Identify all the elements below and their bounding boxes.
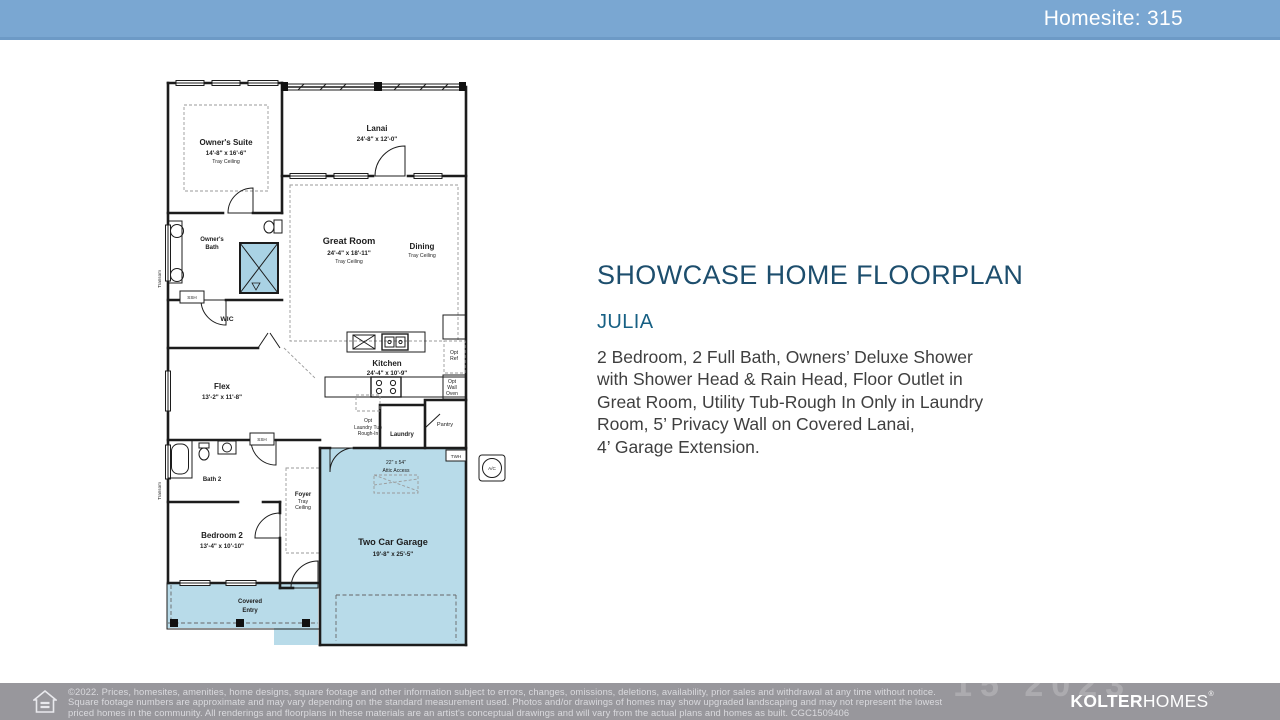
label-dining: Dining — [410, 242, 435, 251]
floorplan-image: Owner's Suite 14'-8" x 16'-6" Tray Ceili… — [150, 77, 510, 653]
label-owners-bath-2: Bath — [205, 245, 219, 251]
label-garage-dim: 19'-8" x 25'-5" — [373, 551, 414, 558]
label-kitchen-dim: 24'-4" x 10'-9" — [367, 370, 408, 377]
page-title: SHOWCASE HOME FLOORPLAN — [597, 260, 1023, 291]
label-kitchen: Kitchen — [372, 359, 401, 368]
blue-fill-areas — [167, 243, 466, 645]
label-bedroom-2-dim: 13'-4" x 10'-10" — [200, 543, 244, 550]
label-great-room-dim: 24'-4" x 18'-11" — [327, 250, 371, 257]
label-flex: Flex — [214, 382, 231, 391]
label-foyer-tray-2: Ceiling — [295, 505, 311, 511]
description-line: Room, 5’ Privacy Wall on Covered Lanai, — [597, 413, 983, 435]
label-owners-suite-tray: Tray Ceiling — [212, 159, 240, 165]
entry-walkway — [274, 628, 318, 645]
homesite-label: Homesite: 315 — [1044, 0, 1183, 37]
label-attic-1: 22" x 54" — [386, 460, 406, 466]
label-garage: Two Car Garage — [358, 537, 428, 547]
legal-line-3: priced homes in the community. All rende… — [68, 708, 942, 718]
label-foyer: Foyer — [295, 492, 312, 498]
label-lanai: Lanai — [367, 124, 388, 133]
label-great-room: Great Room — [323, 236, 376, 246]
label-covered-1: Covered — [238, 599, 262, 605]
label-bedroom-2: Bedroom 2 — [201, 531, 243, 540]
legal-text: ©2022. Prices, homesites, amenities, hom… — [68, 687, 942, 718]
label-bath-2: Bath 2 — [203, 477, 222, 483]
description-line: Great Room, Utility Tub-Rough In Only in… — [597, 391, 983, 413]
label-flex-dim: 13'-2" x 11'-8" — [202, 394, 242, 401]
registered-mark: ® — [1209, 691, 1214, 698]
label-lanai-dim: 24'-8" x 12'-0" — [357, 136, 398, 143]
page: Homesite: 315 — [0, 0, 1280, 720]
lanai-screen — [281, 82, 466, 91]
brand-bold: KOLTER — [1070, 691, 1142, 711]
label-transom-1: Transom — [157, 270, 162, 288]
label-attic-2: Attic Access — [383, 468, 410, 474]
brand-light: HOMES — [1143, 691, 1209, 711]
description-line: 2 Bedroom, 2 Full Bath, Owners’ Deluxe S… — [597, 346, 983, 368]
label-laundry: Laundry — [390, 432, 414, 438]
label-great-room-tray: Tray Ceiling — [335, 259, 363, 265]
description: 2 Bedroom, 2 Full Bath, Owners’ Deluxe S… — [597, 346, 983, 458]
label-twh: TWH — [451, 454, 461, 459]
label-opt-ref-2: Ref — [450, 356, 458, 362]
label-opt-laundry-1: Opt — [364, 418, 373, 424]
label-transom-2: Transom — [157, 482, 162, 500]
description-line: with Shower Head & Rain Head, Floor Outl… — [597, 368, 983, 390]
label-opt-laundry-3: Rough-In — [358, 431, 379, 437]
label-wic: WIC — [220, 316, 233, 323]
top-bar: Homesite: 315 — [0, 0, 1280, 40]
label-pantry: Pantry — [437, 422, 453, 428]
equal-housing-icon — [33, 689, 57, 715]
label-ac: A/C — [488, 466, 496, 471]
footer: 15 2023 ©2022. Prices, homesites, amenit… — [0, 683, 1280, 720]
label-ssh-2: SSH — [257, 437, 266, 442]
label-ssh-1: SSH — [187, 295, 196, 300]
label-opt-oven-3: Oven — [446, 391, 458, 397]
label-owners-suite-dim: 14'-8" x 16'-6" — [206, 150, 247, 157]
model-name: JULIA — [597, 311, 653, 334]
description-line: 4’ Garage Extension. — [597, 436, 983, 458]
label-owners-suite: Owner's Suite — [199, 138, 253, 147]
label-dining-tray: Tray Ceiling — [408, 253, 436, 259]
kolter-homes-logo: KOLTERHOMES® — [1070, 691, 1214, 712]
label-owners-bath-1: Owner's — [200, 237, 224, 243]
label-covered-2: Entry — [242, 608, 258, 614]
